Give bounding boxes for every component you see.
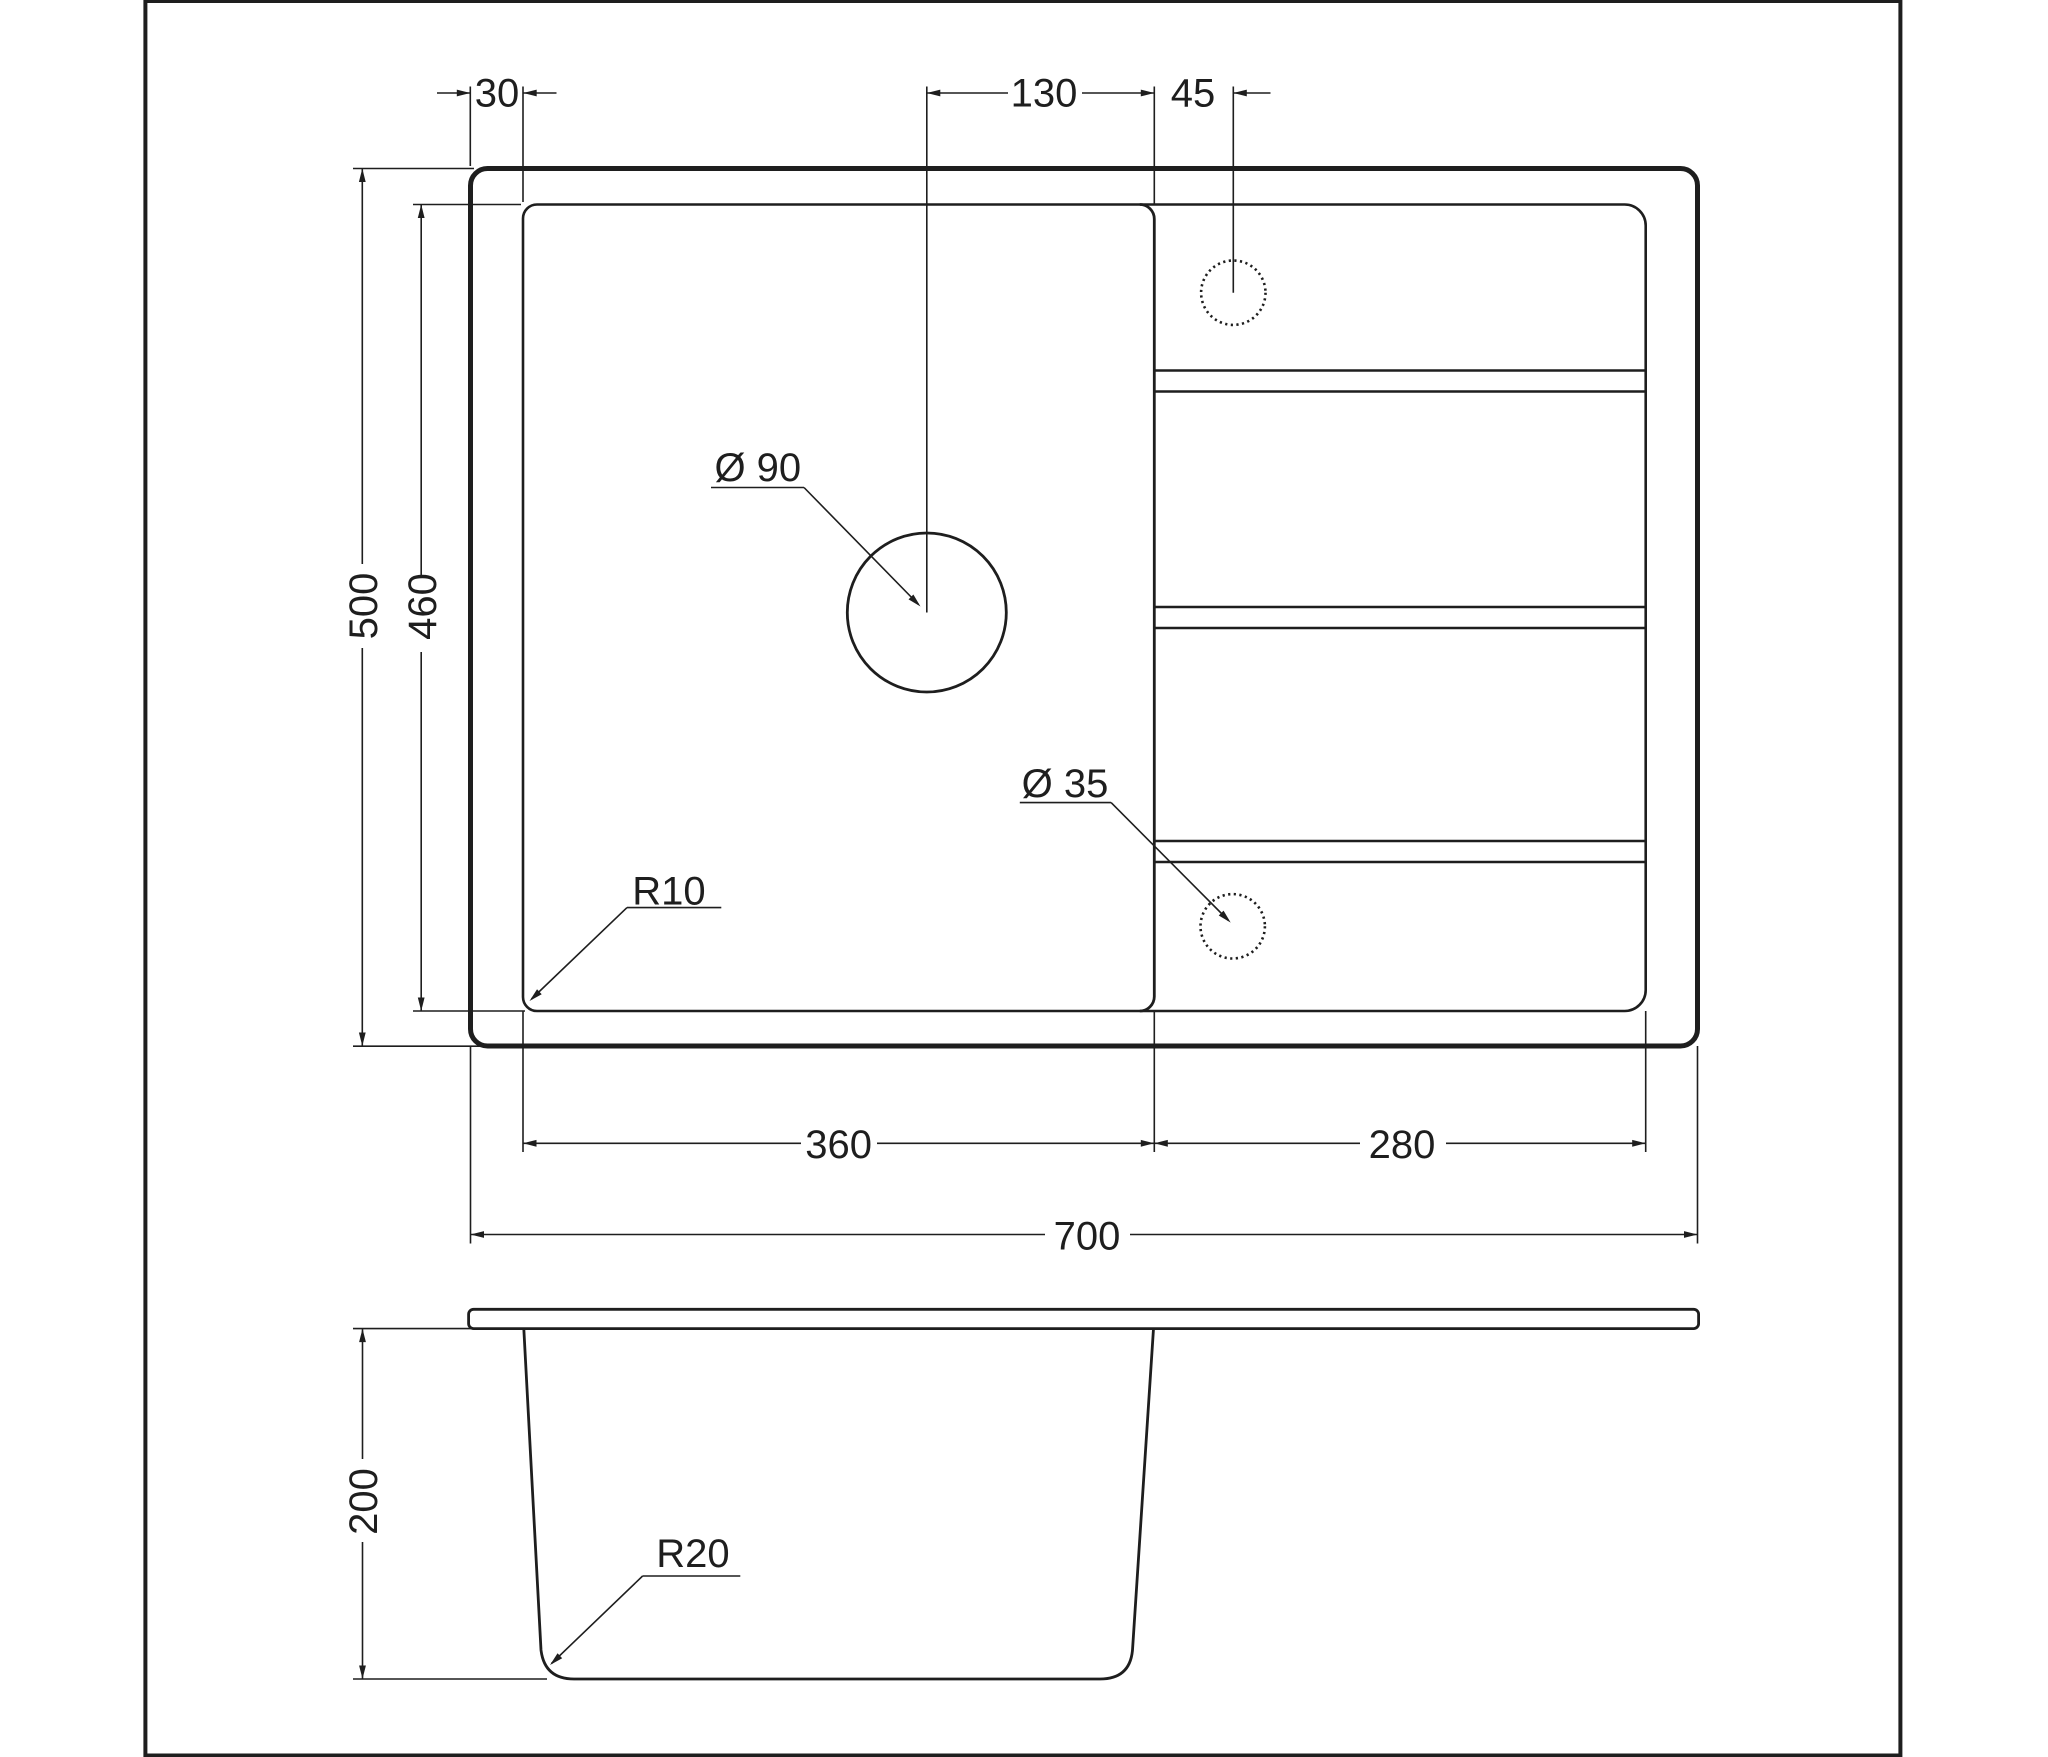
svg-text:Ø 35: Ø 35 [1022,762,1109,806]
svg-text:280: 280 [1369,1123,1436,1167]
svg-text:200: 200 [342,1468,386,1535]
svg-text:360: 360 [805,1123,872,1167]
svg-text:Ø 90: Ø 90 [714,446,801,490]
svg-text:700: 700 [1054,1215,1121,1259]
svg-text:30: 30 [475,72,520,116]
svg-text:460: 460 [401,573,445,640]
svg-text:500: 500 [342,573,386,640]
svg-text:R10: R10 [632,870,705,914]
svg-text:R20: R20 [656,1532,729,1576]
svg-text:130: 130 [1011,72,1078,116]
svg-text:45: 45 [1171,72,1216,116]
